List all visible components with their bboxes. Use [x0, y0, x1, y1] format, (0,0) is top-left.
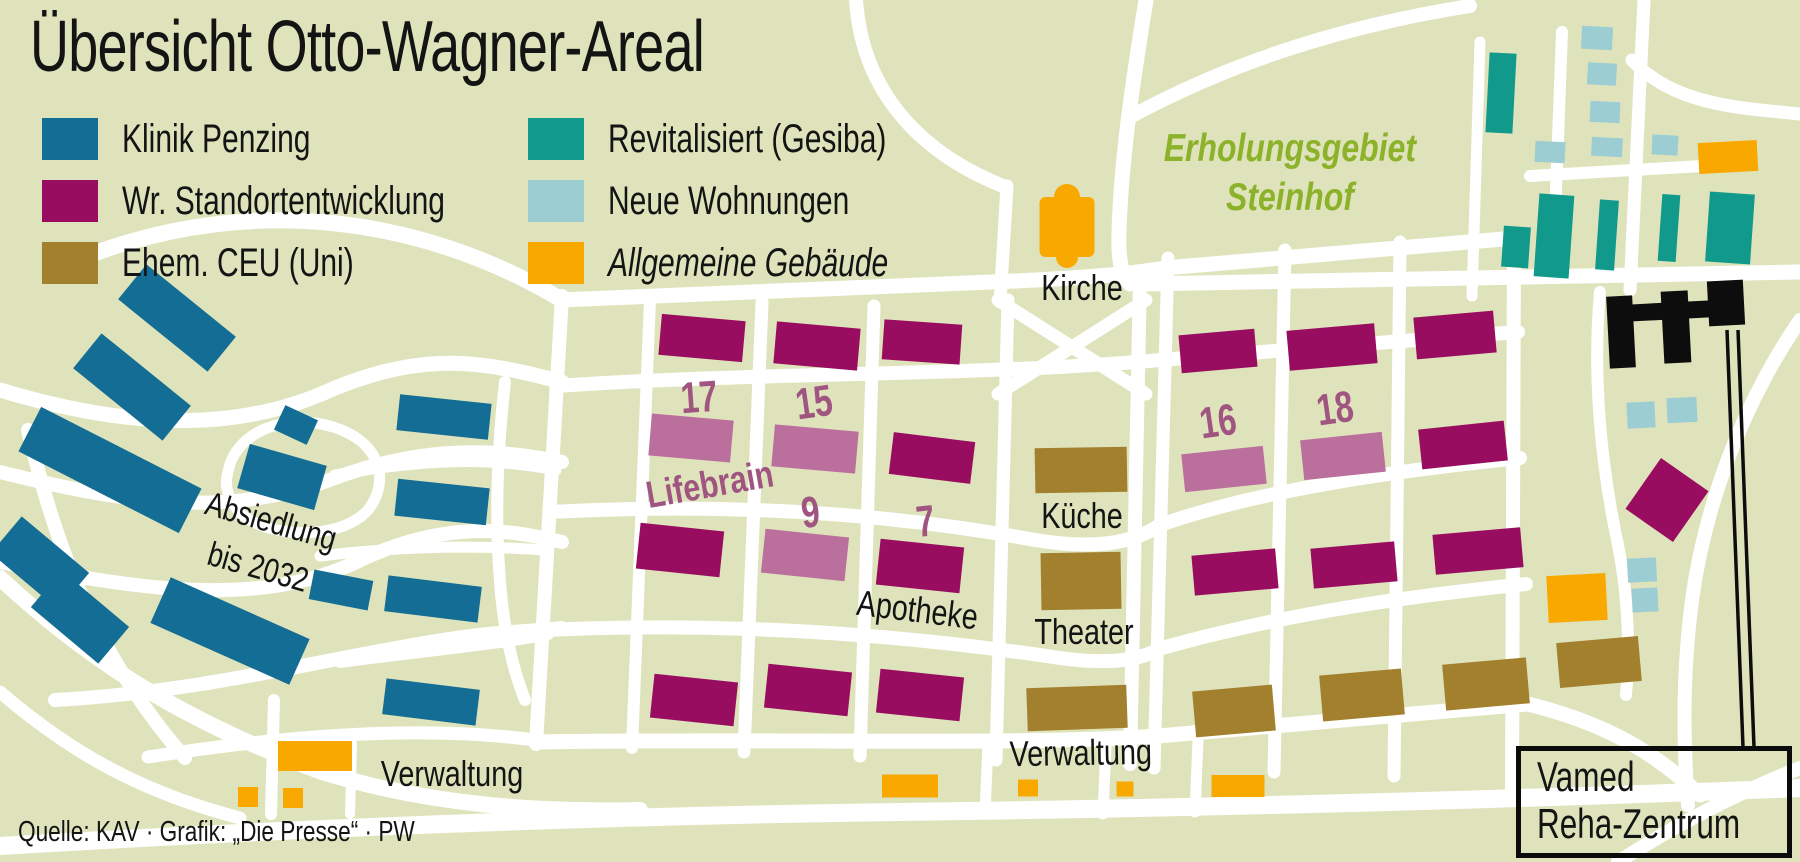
map-label-kirche: Kirche — [1041, 267, 1123, 308]
building-stand — [876, 669, 964, 722]
map-label-kueche: Küche — [1041, 495, 1123, 536]
building-revit — [1485, 52, 1516, 133]
legend-label: Ehem. CEU (Uni) — [122, 242, 431, 284]
region-label-line1: Erholungsgebiet — [1164, 124, 1416, 173]
region-label-erholungsgebiet: Erholungsgebiet Steinhof — [1130, 124, 1450, 222]
building-ceu — [1041, 552, 1122, 610]
road — [1000, 186, 1007, 302]
legend-label: Revitalisiert (Gesiba) — [608, 118, 979, 160]
building-vamed — [1707, 280, 1745, 327]
building-wohn — [1627, 557, 1657, 582]
building-allg — [1018, 780, 1038, 797]
map-label-nr-16: 16 — [1196, 395, 1239, 448]
building-allg — [238, 787, 258, 807]
building-wohn — [1587, 62, 1617, 85]
church-building — [1054, 184, 1080, 210]
map-label-nr-18: 18 — [1313, 382, 1356, 435]
building-wohn — [1651, 134, 1678, 155]
building-allg — [1698, 140, 1759, 174]
building-revit — [1705, 192, 1755, 265]
building-revit — [1534, 193, 1575, 278]
building-wohn — [1589, 101, 1620, 124]
page-title: Übersicht Otto-Wagner-Areal — [30, 6, 929, 88]
building-vamed — [1661, 290, 1692, 363]
legend-swatch-ceu — [42, 242, 98, 284]
building-mauve — [1300, 432, 1386, 480]
building-stand — [636, 523, 724, 578]
building-ceu — [1026, 685, 1127, 731]
legend-swatch-revitalisiert — [528, 118, 584, 160]
building-ceu — [1319, 669, 1405, 722]
source-credit: Quelle: KAV · Grafik: „Die Presse“ · PW — [18, 816, 527, 849]
legend-swatch-klinik — [42, 118, 98, 160]
map-label-nr-15: 15 — [792, 376, 835, 429]
building-allg — [1117, 782, 1134, 797]
page-title-text: Übersicht Otto-Wagner-Areal — [30, 6, 704, 88]
building-stand — [764, 664, 852, 717]
building-allg — [1546, 573, 1607, 623]
building-stand — [1286, 323, 1377, 371]
road — [1130, 278, 1140, 764]
building-wohn — [1534, 141, 1565, 164]
church-building — [1056, 246, 1078, 268]
legend-swatch-standort — [42, 180, 98, 222]
building-stand — [1432, 527, 1523, 575]
road — [1512, 236, 1514, 800]
building-ceu — [1192, 685, 1276, 738]
legend-swatch-wohnungen — [528, 180, 584, 222]
building-stand — [1310, 541, 1397, 588]
map-label-nr-17: 17 — [679, 372, 719, 423]
road — [1195, 740, 1198, 812]
building-stand — [658, 314, 745, 362]
building-wohn — [1631, 587, 1658, 612]
building-wohn — [1581, 26, 1613, 51]
building-ceu — [1556, 636, 1642, 688]
map-label-verwaltung-links: Verwaltung — [381, 753, 523, 794]
building-stand — [650, 674, 738, 727]
building-stand — [1413, 311, 1496, 360]
otto-wagner-areal-infographic: KircheKücheTheaterVerwaltungVerwaltungAp… — [0, 0, 1800, 862]
building-stand — [1191, 548, 1278, 595]
vamed-label-line1: Vamed — [1537, 753, 1634, 800]
legend-swatch-allgemein — [528, 242, 584, 284]
building-ceu — [1442, 657, 1530, 710]
legend-label: Klinik Penzing — [122, 118, 373, 160]
map-label-verwaltung-mitte: Verwaltung — [1009, 731, 1152, 774]
building-allg — [283, 788, 303, 808]
vamed-label-box: Vamed Reha-Zentrum — [1516, 746, 1792, 858]
building-wohn — [1626, 401, 1655, 428]
building-wohn — [1591, 137, 1623, 158]
legend-label: Neue Wohnungen — [608, 180, 930, 222]
building-ceu — [1035, 447, 1128, 494]
map-label-theater: Theater — [1034, 611, 1133, 652]
building-allg — [278, 741, 352, 771]
vamed-label-line2: Reha-Zentrum — [1537, 800, 1740, 847]
building-allg — [1212, 775, 1265, 797]
building-mauve — [771, 424, 858, 473]
legend-label: Wr. Standortentwicklung — [122, 180, 553, 222]
road — [271, 700, 274, 814]
road — [985, 742, 988, 814]
building-allg — [882, 775, 938, 798]
region-label-line2: Steinhof — [1226, 173, 1354, 222]
building-stand — [882, 319, 963, 364]
building-wohn — [1666, 397, 1697, 424]
building-revit — [1501, 226, 1531, 269]
legend-label: Allgemeine Gebäude — [608, 242, 982, 284]
building-stand — [1178, 329, 1257, 373]
building-stand — [773, 321, 860, 370]
